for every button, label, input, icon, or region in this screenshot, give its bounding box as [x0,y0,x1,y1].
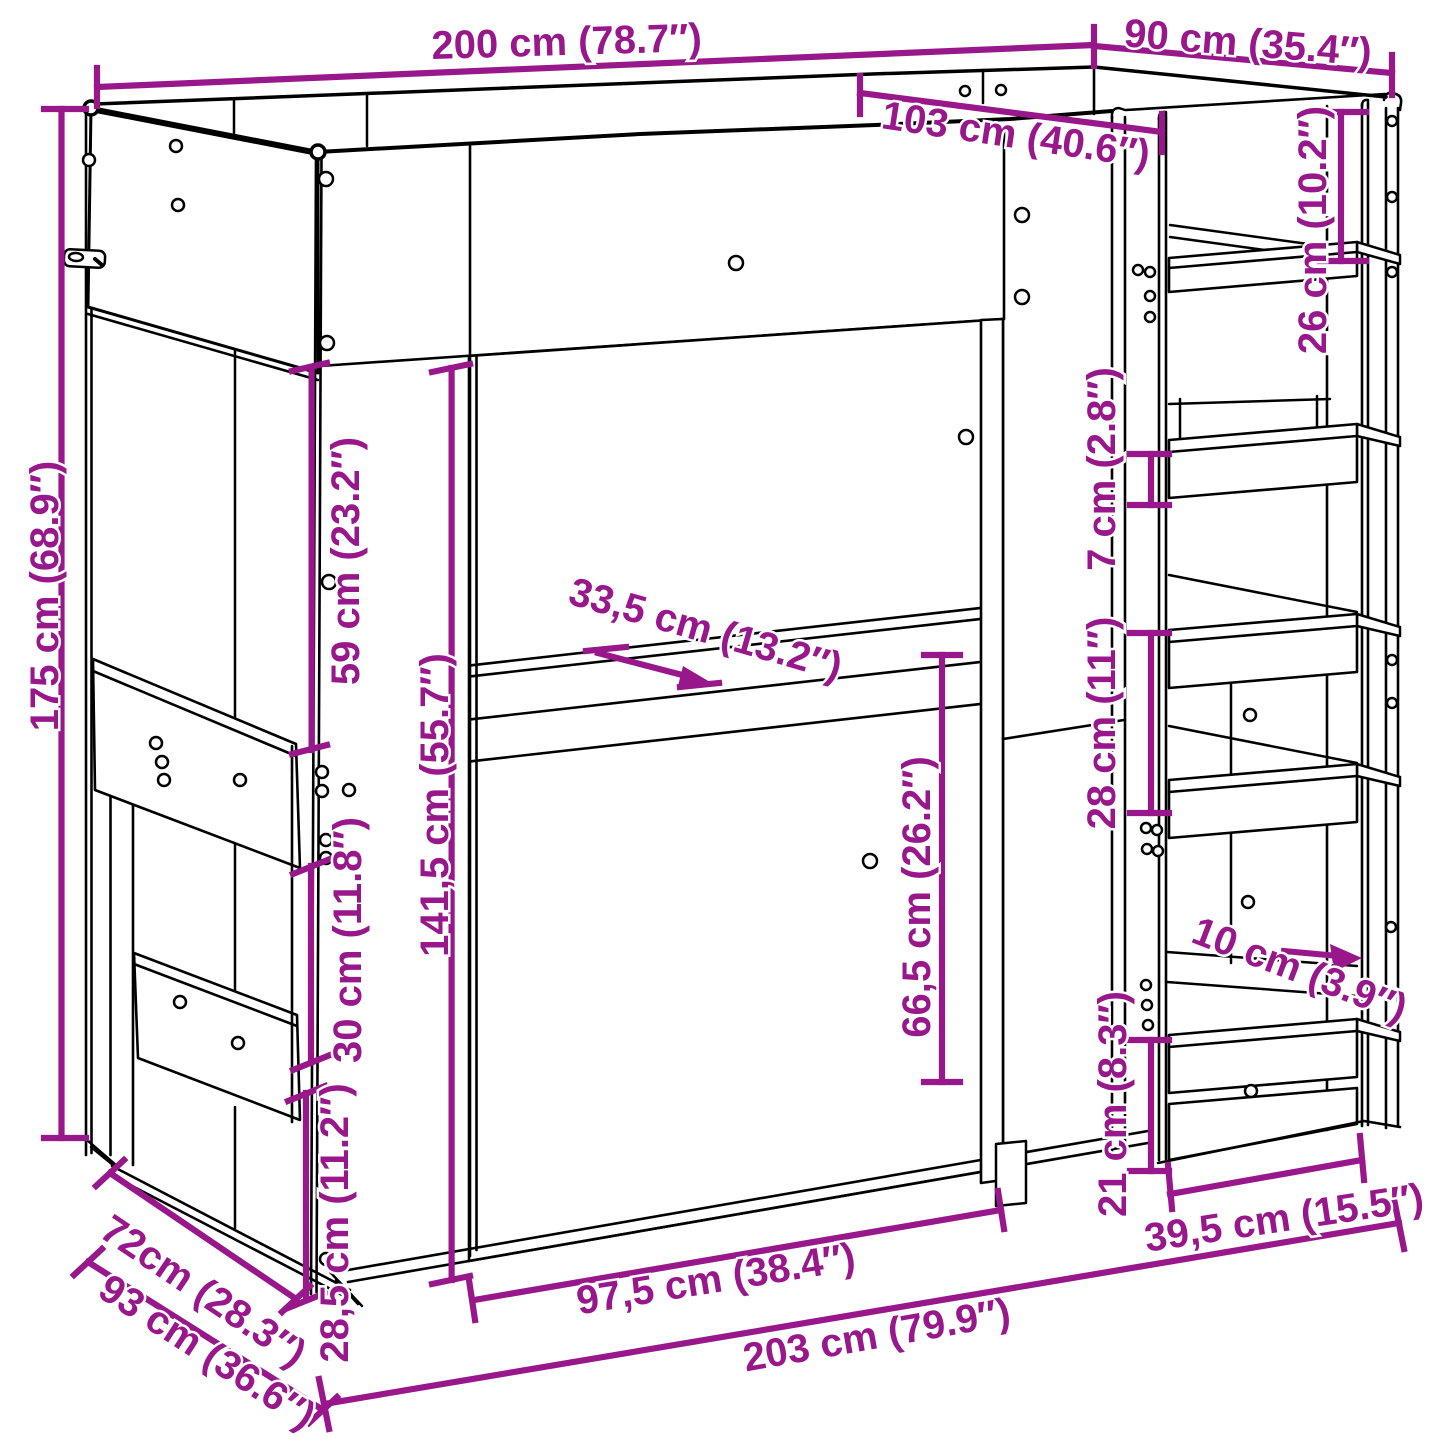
svg-text:30 cm (11.8″): 30 cm (11.8″) [326,817,370,1063]
svg-text:21 cm (8.3″): 21 cm (8.3″) [1091,991,1135,1217]
svg-text:7 cm (2.8″): 7 cm (2.8″) [1080,367,1124,571]
svg-text:26 cm (10.2″): 26 cm (10.2″) [1291,106,1335,354]
svg-text:28 cm (11″): 28 cm (11″) [1080,617,1124,830]
svg-text:175 cm (68.9″): 175 cm (68.9″) [23,461,67,731]
svg-text:200 cm (78.7″): 200 cm (78.7″) [431,16,703,68]
svg-text:59 cm (23.2″): 59 cm (23.2″) [324,437,368,685]
svg-text:28,5 cm (11.2″): 28,5 cm (11.2″) [313,1083,357,1362]
svg-text:66,5 cm (26.2″): 66,5 cm (26.2″) [895,756,939,1038]
svg-text:141,5 cm (55.7″): 141,5 cm (55.7″) [413,653,457,957]
